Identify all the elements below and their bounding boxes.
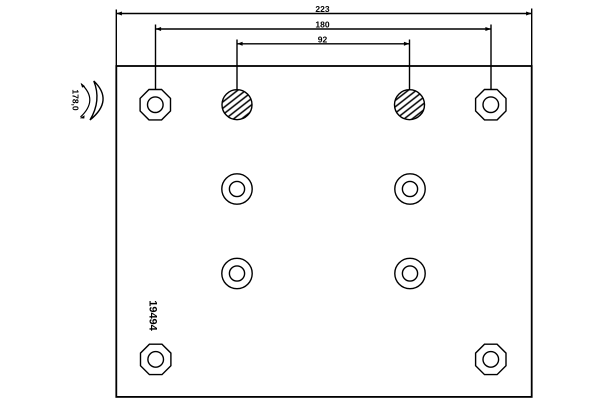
svg-text:223: 223 — [315, 4, 329, 14]
svg-text:19494: 19494 — [147, 300, 159, 331]
svg-text:92: 92 — [318, 34, 328, 44]
svg-text:180: 180 — [315, 19, 329, 29]
svg-text:178,0: 178,0 — [71, 89, 81, 111]
